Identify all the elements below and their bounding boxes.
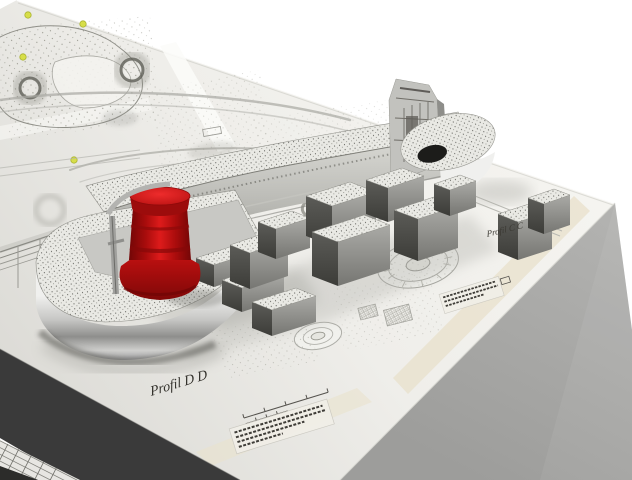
model-viewport[interactable]: Profil D D Profil C C bbox=[0, 0, 632, 480]
marker-dot bbox=[25, 12, 31, 18]
marker-dot bbox=[20, 54, 26, 60]
render-canvas: Profil D D Profil C C bbox=[0, 0, 632, 480]
marker-dot bbox=[80, 21, 86, 27]
